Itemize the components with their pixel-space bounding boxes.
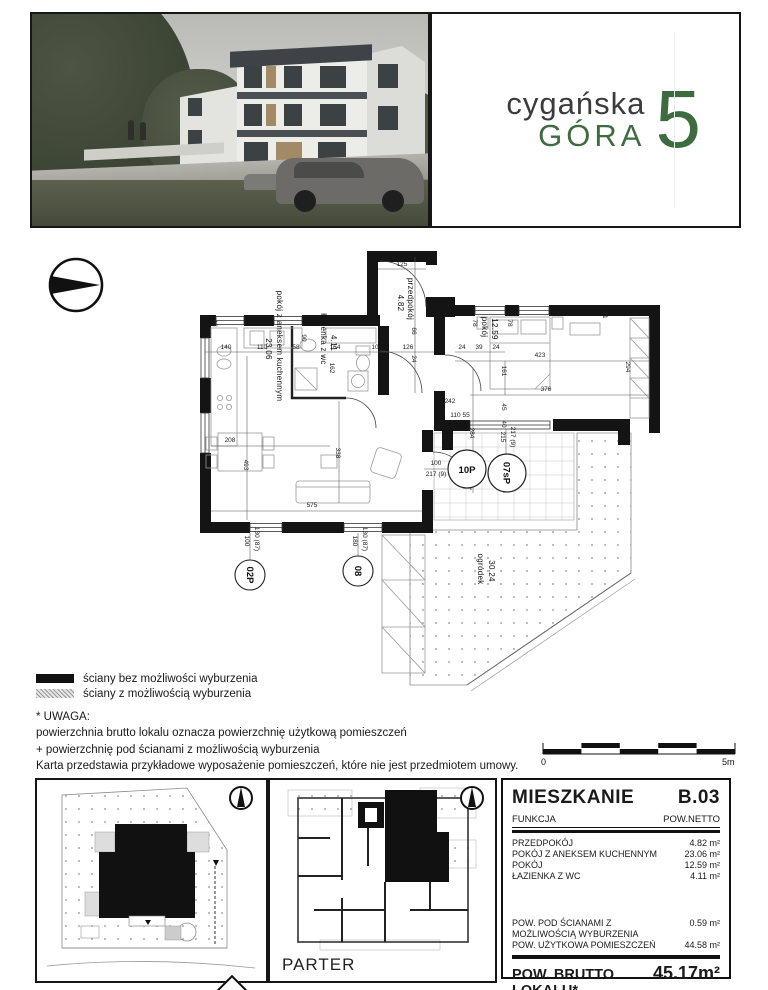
room-area-bath: 4.11 [329, 335, 338, 351]
window [244, 104, 262, 126]
dim-label: 78 [471, 319, 478, 327]
dim-label: 110 55 [450, 412, 470, 419]
dim-label: 58 [292, 344, 300, 351]
note-block: * UWAGA: powierzchnia brutto lokalu ozna… [36, 709, 556, 774]
car-wheel [294, 190, 316, 212]
room-label-garden: ogródek [476, 553, 485, 585]
rule [512, 955, 720, 959]
note-line: powierzchnia brutto lokalu oznacza powie… [36, 725, 556, 741]
window [378, 64, 398, 88]
parter-label: PARTER [282, 955, 355, 975]
dim-label: 100 [431, 460, 442, 467]
total-label: POW. BRUTTO LOKALU* [512, 967, 653, 990]
table-row: POW. UŻYTKOWA POMIESZCZEŃ 44.58 m² [512, 940, 720, 951]
col-header-funkcja: FUNKCJA [512, 814, 556, 825]
logo-number: 5 [655, 85, 701, 155]
legend-swatch-solid [36, 674, 74, 683]
dim-label: 294 [624, 362, 631, 373]
rule [512, 830, 720, 833]
table-row: ŁAZIENKA Z WC 4.11 m² [512, 871, 720, 882]
dim-label: 208 [225, 437, 236, 444]
dim-label: 130 (87) [253, 527, 260, 551]
divider [674, 32, 675, 208]
room-area: 4.11 m² [690, 871, 720, 882]
dim-label: 493 [242, 460, 249, 471]
dim-label: 39 [475, 344, 483, 351]
rule [512, 827, 720, 828]
car [276, 158, 424, 204]
dim-label: 24 [458, 344, 466, 351]
wood-panel [266, 104, 276, 126]
dim-label: 161 [500, 366, 507, 377]
dim-label: 66 [410, 327, 417, 335]
dim-label: 10 [371, 344, 379, 351]
logo-line2: GÓRA [506, 120, 645, 152]
window [320, 104, 346, 126]
window [320, 66, 346, 88]
room-area-living: 23.06 [264, 338, 273, 360]
room-label-bath: łazienka z wc [319, 313, 328, 364]
north-arrow-icon [461, 787, 483, 809]
legend-label: ściany bez możliwości wyburzenia [83, 673, 257, 685]
dim-label: 215 [499, 432, 506, 443]
room-label-bedroom: pokój [480, 317, 489, 338]
svg-text:08: 08 [352, 566, 363, 577]
dim-label: 45 [500, 403, 507, 411]
note-line: + powierzchnię pod ścianami z możliwości… [36, 742, 556, 758]
legend: ściany bez możliwości wyburzenia ściany … [36, 671, 257, 701]
sub-label: POW. UŻYTKOWA POMIESZCZEŃ [512, 940, 656, 951]
marker-10P: 10P [448, 450, 486, 488]
sub-label: POW. POD ŚCIANAMI Z MOŻLIWOŚCIĄ WYBURZEN… [512, 918, 662, 940]
dim-label: 140 [221, 344, 232, 351]
floor-plan: 125 66 24 126 24 39 24 423 376 161 78 78… [30, 243, 740, 703]
table-title: MIESZKANIE [512, 787, 634, 809]
sub-value: 0.59 m² [689, 918, 720, 929]
person-silhouette [128, 120, 134, 140]
room-area: 12.59 m² [684, 860, 720, 871]
col-header-pownetto: POW.NETTO [663, 814, 720, 825]
dim-label: 21 [601, 311, 608, 319]
area-table: MIESZKANIE B.03 FUNKCJA POW.NETTO PRZEDP… [501, 778, 731, 979]
table-row: PRZEDPOKÓJ 4.82 m² [512, 838, 720, 849]
window [244, 66, 262, 88]
dim-label: 78 [506, 319, 513, 327]
total-value: 45.17m² [653, 963, 720, 984]
scale-end-label: 5m [722, 757, 735, 767]
marker-07sP: 07sP [488, 454, 526, 492]
dim-label: 217 (9) [509, 427, 516, 448]
building-photo [30, 12, 430, 228]
room-area-hall: 4.82 [396, 295, 405, 312]
scale-bar: 0 5m [540, 740, 738, 773]
table-row: POKÓJ Z ANEKSEM KUCHENNYM 23.06 m² [512, 849, 720, 860]
car-wheel [382, 190, 404, 212]
room-name: POKÓJ [512, 860, 543, 871]
legend-label: ściany z możliwością wyburzenia [83, 688, 251, 700]
dim-label: 40 [500, 420, 507, 428]
svg-text:10P: 10P [459, 465, 477, 476]
dim-label: 125 [397, 261, 408, 268]
legend-item: ściany bez możliwości wyburzenia [36, 671, 257, 686]
table-row: POKÓJ 12.59 m² [512, 860, 720, 871]
window [284, 104, 302, 126]
project-logo-panel: cygańska GÓRA 5 [430, 12, 741, 228]
dim-label: 217 (9) [426, 471, 447, 478]
legend-swatch-hatch [36, 689, 74, 698]
dim-label: 130 (87) [361, 527, 368, 551]
marker-08: 08 [343, 556, 373, 586]
dim-label: 100 [243, 536, 250, 547]
room-area: 23.06 m² [684, 849, 720, 860]
site-plan-panel [35, 778, 268, 983]
facade-band [237, 130, 367, 137]
dim-label: 90 [300, 334, 307, 342]
table-row: POW. POD ŚCIANAMI Z MOŻLIWOŚCIĄ WYBURZEN… [512, 918, 720, 940]
facade-band [237, 92, 367, 99]
windows [201, 307, 550, 532]
unit-number: B.03 [678, 787, 720, 809]
sub-value: 44.58 m² [684, 940, 720, 951]
svg-text:02P: 02P [244, 567, 255, 585]
dim-label: 126 [403, 344, 414, 351]
room-name: POKÓJ Z ANEKSEM KUCHENNYM [512, 849, 657, 860]
car-cabin [294, 162, 364, 178]
svg-text:07sP: 07sP [501, 462, 512, 485]
dim-label: 242 [445, 398, 456, 405]
window [284, 66, 302, 88]
dim-label: 48 [211, 319, 218, 327]
north-arrow-icon [50, 259, 102, 311]
dim-label: 24 [492, 344, 500, 351]
marker-02P: 02P [235, 560, 265, 590]
dim-label: 284 [468, 428, 475, 439]
dim-label: 376 [541, 386, 552, 393]
room-label-hall: przedpokój [406, 278, 415, 320]
parter-plan-panel: PARTER [268, 778, 497, 983]
room-name: ŁAZIENKA Z WC [512, 871, 581, 882]
note-line: Karta przedstawia przykładowe wyposażeni… [36, 758, 556, 774]
room-area: 4.82 m² [689, 838, 720, 849]
brochure-page: cygańska GÓRA 5 [0, 0, 768, 990]
dim-label: 575 [307, 502, 318, 509]
room-area-bedroom: 12.59 [490, 318, 499, 340]
legend-item: ściany z możliwością wyburzenia [36, 686, 257, 701]
room-name: PRZEDPOKÓJ [512, 838, 573, 849]
floor-plan-svg: 125 66 24 126 24 39 24 423 376 161 78 78… [30, 243, 740, 703]
room-area-garden: 30.24 [487, 560, 496, 582]
wood-panel [266, 66, 276, 88]
dim-label: 162 [328, 363, 335, 374]
north-arrow-icon [230, 787, 252, 809]
logo-line1: cygańska [506, 88, 645, 120]
dim-label: 338 [334, 448, 341, 459]
dim-label: 24 [410, 355, 417, 363]
scale-start-label: 0 [541, 757, 546, 767]
dim-label: 423 [535, 352, 546, 359]
person-silhouette [140, 122, 146, 140]
window [378, 106, 398, 130]
dim-label: 180 [351, 536, 358, 547]
note-title: * UWAGA: [36, 709, 556, 725]
room-label-living: pokój z aneksem kuchennym [275, 291, 284, 402]
window [188, 98, 202, 116]
